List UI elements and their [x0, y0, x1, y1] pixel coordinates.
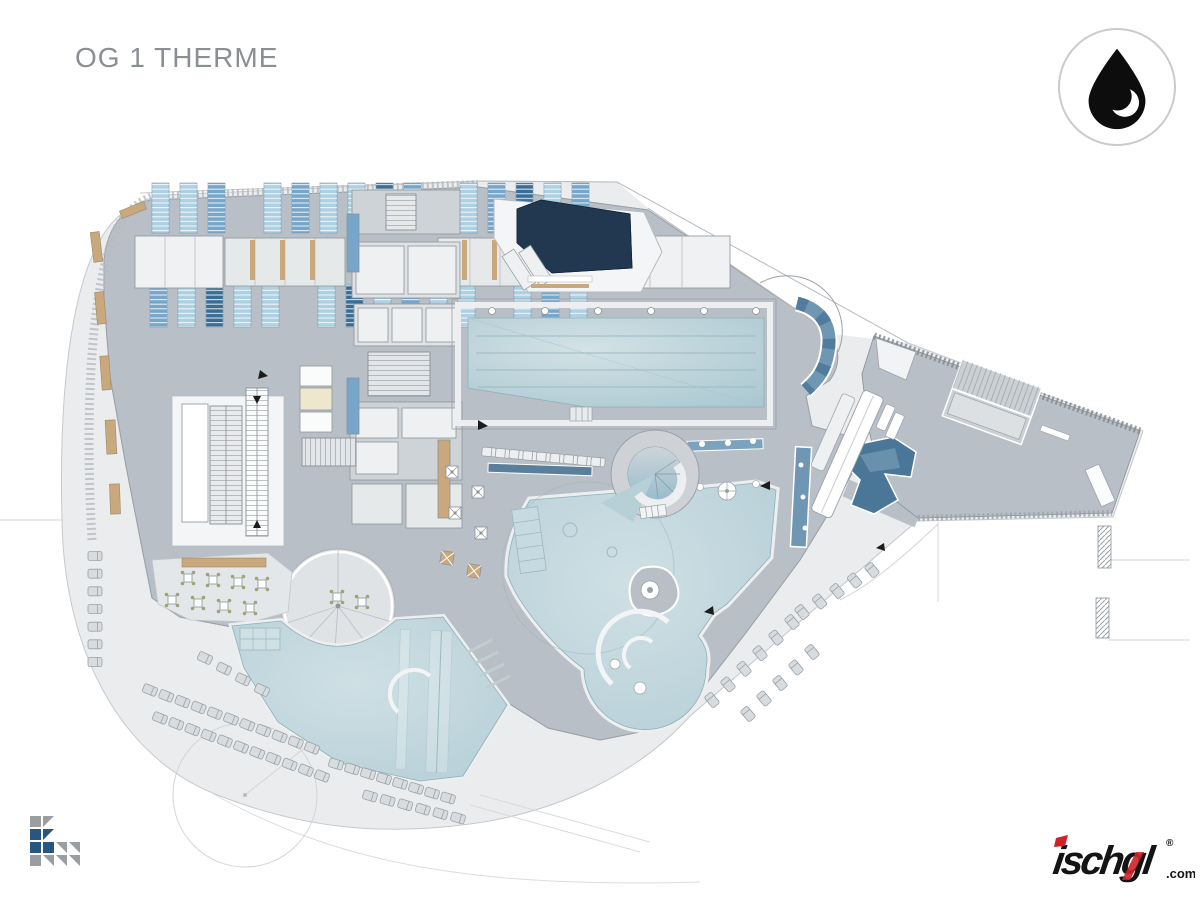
- pixel-k-logo: [30, 816, 84, 875]
- floor-plan: [0, 0, 1200, 900]
- ischgl-logo: ischgl ® .com: [1050, 830, 1195, 893]
- page: OG 1 THERME: [0, 0, 1200, 900]
- registered-mark: ®: [1166, 838, 1174, 849]
- indoor-pool: [494, 199, 662, 295]
- pixel-k-logo-icon: [30, 816, 84, 870]
- ischgl-wordmark-text: ischgl: [1051, 838, 1159, 883]
- ischgl-wordmark: ischgl ® .com: [1050, 830, 1195, 888]
- domain-suffix: .com: [1166, 866, 1195, 881]
- east-terrace: [862, 336, 1140, 638]
